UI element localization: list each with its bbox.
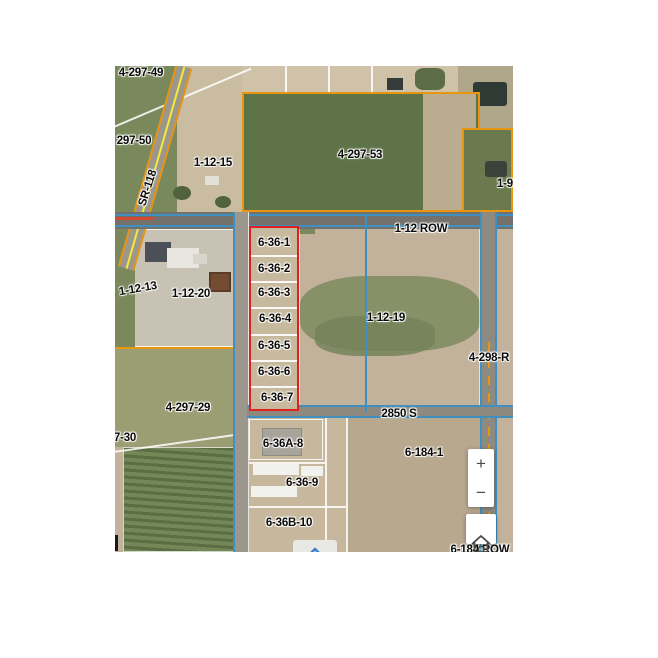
label-parcel-1-12-13: 1-12-13 — [118, 280, 158, 298]
label-parcel-6-36a-8: 6-36A-8 — [263, 438, 303, 450]
label-parcel-6-36-5: 6-36-5 — [258, 340, 290, 352]
zoom-out-button[interactable]: − — [468, 478, 494, 507]
home-extent-button[interactable] — [466, 514, 496, 544]
home-icon — [466, 529, 496, 552]
label-parcel-297-30: 7-30 — [115, 432, 136, 444]
label-parcel-6-184-1: 6-184-1 — [405, 447, 443, 459]
label-parcel-297-50: 297-50 — [117, 135, 152, 147]
map-viewport[interactable]: 4-297-49297-501-12-15SR-1184-297-531-12 … — [115, 66, 513, 552]
label-parcel-6-36b-10: 6-36B-10 — [266, 517, 312, 529]
collapse-panel-tab[interactable] — [293, 540, 337, 552]
label-parcel-6-36-6: 6-36-6 — [258, 366, 290, 378]
label-parcel-1-9: 1-9 — [497, 178, 513, 190]
label-parcel-6-36-9: 6-36-9 — [286, 477, 318, 489]
label-parcel-6-36-7: 6-36-7 — [261, 392, 293, 404]
label-parcel-6-36-3: 6-36-3 — [258, 287, 290, 299]
screenshot-canvas: 4-297-49297-501-12-15SR-1184-297-531-12 … — [0, 0, 658, 658]
label-parcel-6-36-4: 6-36-4 — [259, 313, 291, 325]
label-parcel-1-12-20: 1-12-20 — [172, 288, 210, 300]
label-road-sr-118: SR-118 — [137, 168, 160, 207]
label-road-2850-s: 2850 S — [381, 408, 416, 420]
chevron-up-icon — [293, 546, 337, 552]
label-layer: 4-297-49297-501-12-15SR-1184-297-531-12 … — [115, 66, 513, 552]
label-road-1-12-row: 1-12 ROW — [395, 223, 448, 235]
label-parcel-4-297-53: 4-297-53 — [338, 149, 382, 161]
label-parcel-1-12-15: 1-12-15 — [194, 157, 232, 169]
label-parcel-1-12-19: 1-12-19 — [367, 312, 405, 324]
label-parcel-4-297-29: 4-297-29 — [166, 402, 210, 414]
label-parcel-4-298-r: 4-298-R — [469, 352, 509, 364]
zoom-control-panel: + − — [468, 449, 494, 507]
label-parcel-6-36-2: 6-36-2 — [258, 263, 290, 275]
zoom-in-button[interactable]: + — [468, 449, 494, 478]
label-parcel-4-297-49: 4-297-49 — [119, 67, 163, 79]
label-parcel-6-36-1: 6-36-1 — [258, 237, 290, 249]
